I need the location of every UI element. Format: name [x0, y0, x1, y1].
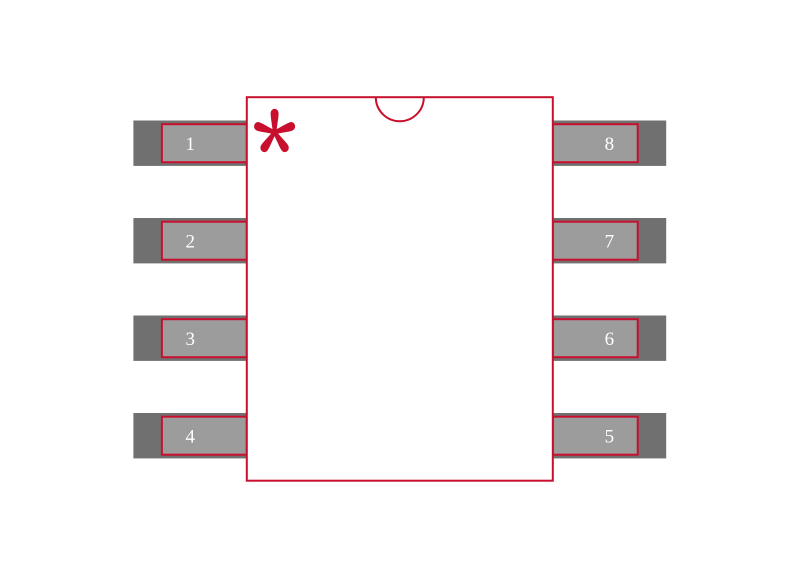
svg-text:6: 6	[605, 329, 615, 350]
svg-text:7: 7	[605, 232, 615, 253]
svg-text:8: 8	[605, 134, 615, 155]
svg-text:3: 3	[185, 329, 195, 350]
svg-text:2: 2	[185, 232, 195, 253]
svg-text:5: 5	[605, 427, 615, 448]
svg-text:4: 4	[185, 427, 195, 448]
svg-text:1: 1	[185, 134, 195, 155]
